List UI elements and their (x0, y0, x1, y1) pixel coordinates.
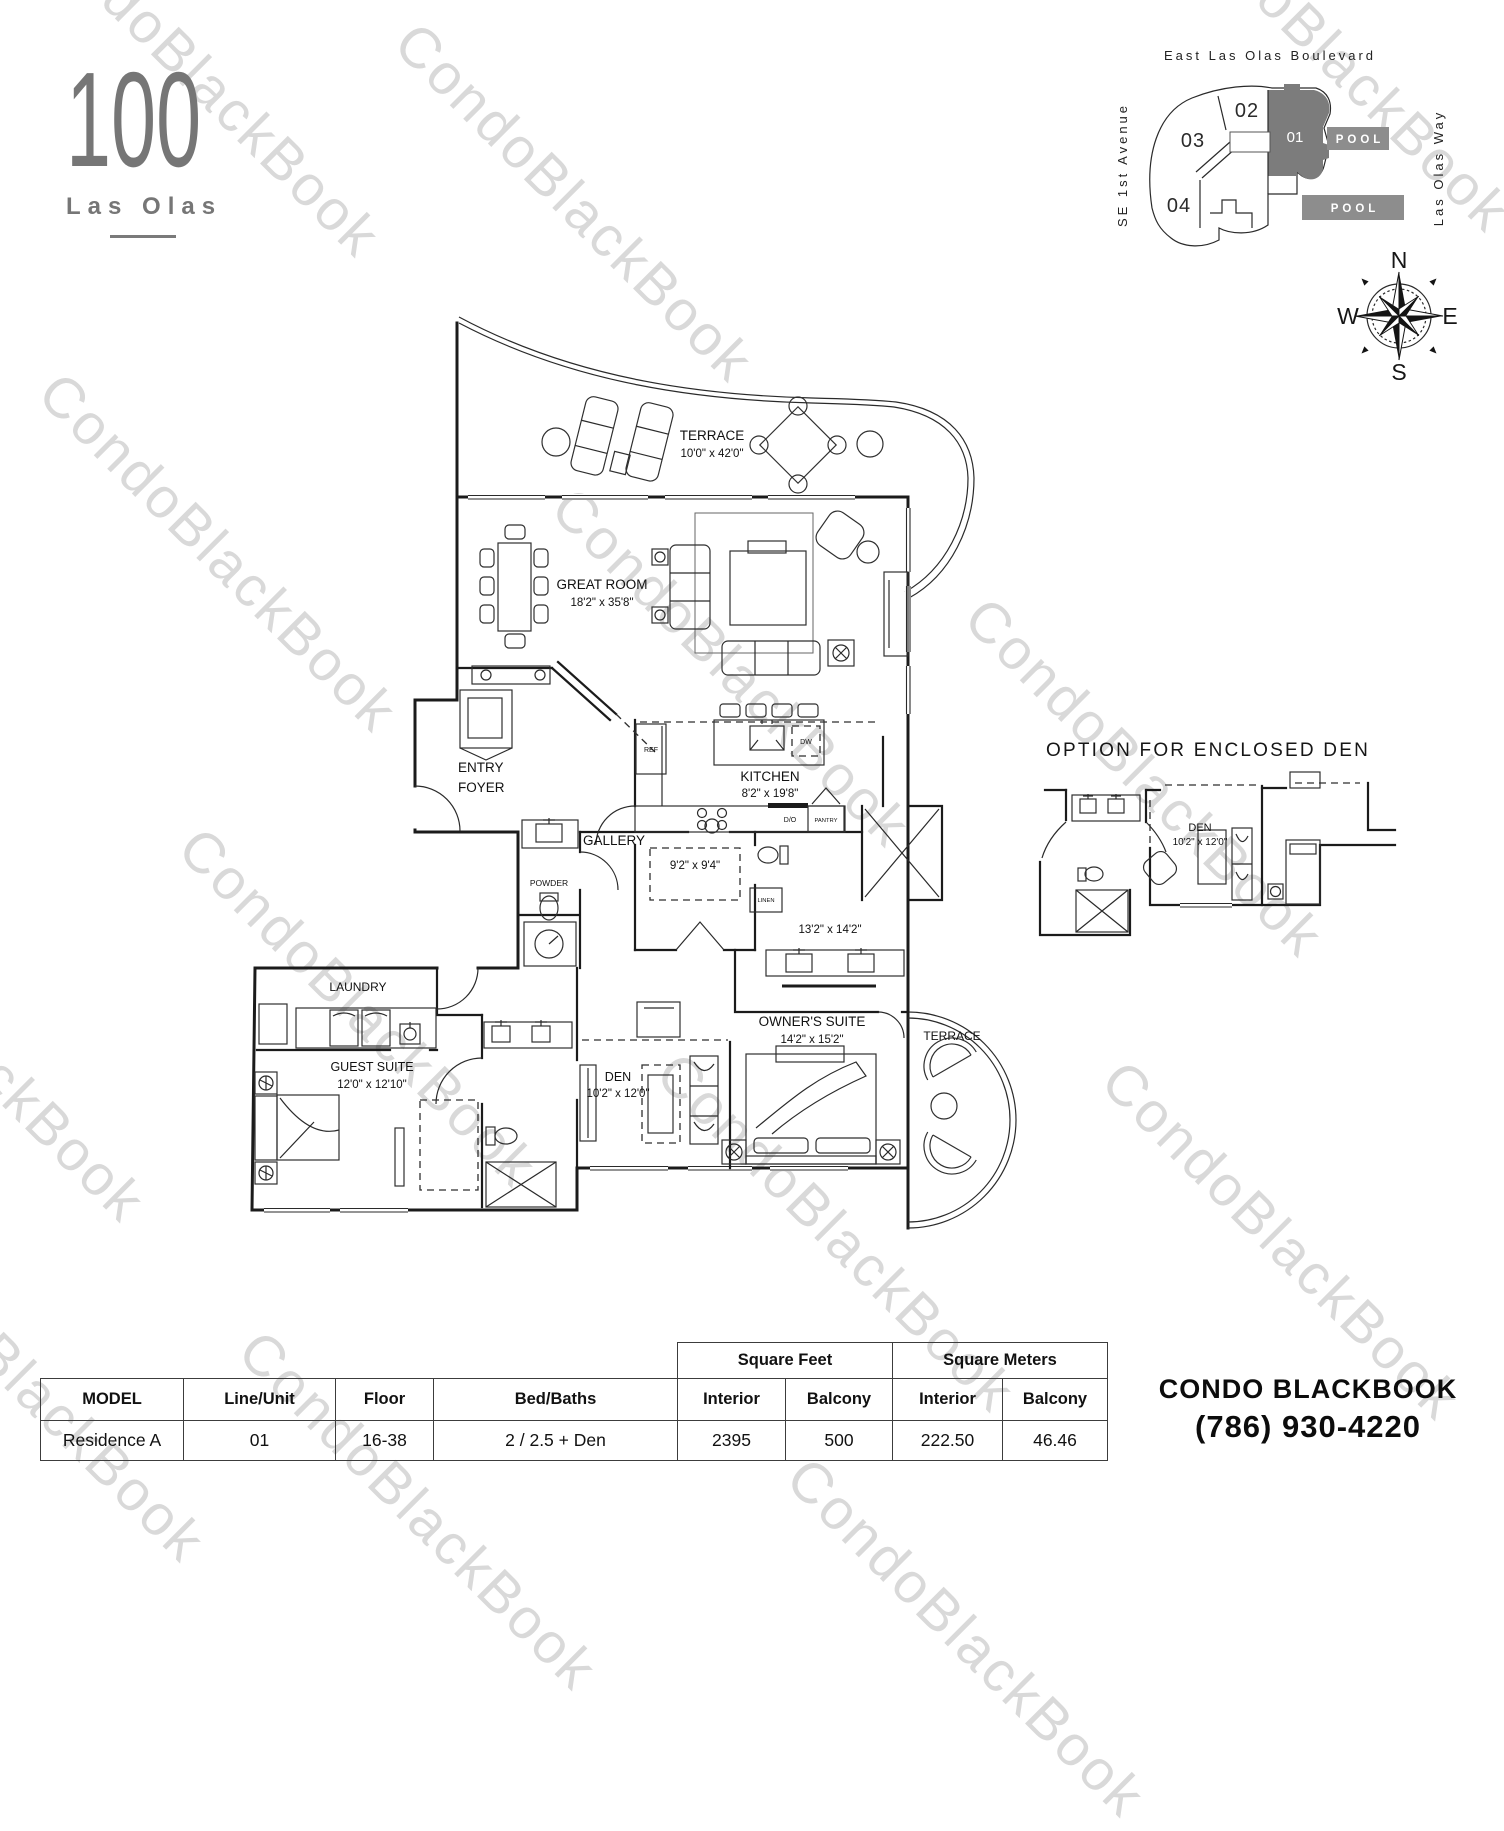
cell-line-unit: 01 (184, 1421, 336, 1461)
group-header-square-meters: Square Meters (893, 1343, 1108, 1379)
option-mini-plan: DEN 10'2" x 12'0" (1040, 772, 1395, 935)
powder-label: POWDER (530, 878, 568, 888)
street-label-top: East Las Olas Boulevard (1164, 48, 1376, 63)
col-header-bed-baths: Bed/Baths (434, 1379, 678, 1421)
owner-terrace-furniture (914, 1028, 976, 1184)
guest-suite-dims: 12'0" x 12'10" (337, 1079, 406, 1091)
cell-sqm-balcony: 46.46 (1003, 1421, 1108, 1461)
logo-number: 100 (66, 52, 201, 187)
pantry-label: PANTRY (815, 818, 838, 824)
terrace-label: TERRACE (680, 428, 745, 443)
owner-bath-fixtures (766, 948, 904, 986)
street-label-right: Las Olas Way (1431, 110, 1446, 226)
compass-star (1355, 272, 1443, 360)
logo-name: Las Olas (66, 193, 291, 221)
entry-foyer-label: FOYER (458, 780, 505, 795)
table-row: Residence A 01 16-38 2 / 2.5 + Den 2395 … (41, 1421, 1108, 1461)
terrace-furniture (542, 395, 883, 493)
dishwasher-label: DW (800, 739, 812, 746)
cell-floor: 16-38 (336, 1421, 434, 1461)
nook-dims: 9'2" x 9'4" (670, 860, 720, 872)
kitchen-label: KITCHEN (740, 769, 799, 784)
gallery-label: GALLERY (583, 833, 645, 848)
owner-suite-dims: 14'2" x 15'2" (780, 1034, 843, 1046)
great-room-label: GREAT ROOM (556, 577, 647, 592)
option-plan-title: OPTION FOR ENCLOSED DEN (1046, 740, 1370, 762)
cell-bed-baths: 2 / 2.5 + Den (434, 1421, 678, 1461)
floorplan-sheet: { "watermark": {"text": "CondoBlackBook"… (0, 0, 1504, 1503)
option-den-label: DEN (1188, 822, 1211, 834)
cell-sqft-interior: 2395 (678, 1421, 786, 1461)
owner-terrace-label: TERRACE (923, 1029, 980, 1043)
door-arcs (415, 786, 904, 1104)
powder-room-fixtures (522, 818, 578, 966)
building-core (1230, 132, 1270, 152)
den-furniture (580, 1002, 718, 1144)
cell-sqft-balcony: 500 (786, 1421, 893, 1461)
unit-label-02: 02 (1235, 100, 1259, 122)
option-furniture (1140, 828, 1320, 904)
table-spacer (41, 1343, 678, 1379)
refrigerator-label: REF (644, 747, 658, 754)
unit-label-03: 03 (1181, 130, 1205, 152)
street-label-left: SE 1st Avenue (1115, 103, 1130, 227)
compass-s: S (1391, 359, 1406, 385)
compass-w: W (1337, 303, 1359, 329)
cell-model: Residence A (41, 1421, 184, 1461)
laundry-fixtures (259, 1004, 436, 1048)
main-floor-plan: DW REF D/O PANTRY (252, 317, 1016, 1228)
owner-terrace-railing (908, 1012, 1016, 1228)
spec-table: Square Feet Square Meters MODEL Line/Uni… (40, 1342, 1108, 1461)
kitchen-dims: 8'2" x 19'8" (742, 788, 799, 800)
contact-block: CONDO BLACKBOOK (786) 930-4220 (1118, 1374, 1498, 1445)
col-header-sqft-balcony: Balcony (786, 1379, 893, 1421)
great-room-furniture (460, 507, 908, 760)
col-header-sqft-interior: Interior (678, 1379, 786, 1421)
pool-label: POOL (1331, 203, 1380, 215)
cell-sqm-interior: 222.50 (893, 1421, 1003, 1461)
owner-suite-furniture (722, 1046, 900, 1164)
site-map: East Las Olas Boulevard SE 1st Avenue La… (1115, 48, 1446, 246)
oven-label: D/O (784, 817, 797, 824)
guest-suite-label: GUEST SUITE (330, 1060, 413, 1074)
col-header-sqm-interior: Interior (893, 1379, 1003, 1421)
col-header-model: MODEL (41, 1379, 184, 1421)
col-header-sqm-balcony: Balcony (1003, 1379, 1108, 1421)
linen-label: LINEN (757, 898, 774, 904)
owner-bath-dims: 13'2" x 14'2" (798, 924, 861, 936)
guest-bath-fixtures (484, 1020, 572, 1207)
option-walls (1040, 772, 1395, 935)
laundry-label: LAUNDRY (329, 980, 386, 994)
logo-underline (110, 235, 176, 238)
group-header-square-feet: Square Feet (678, 1343, 893, 1379)
col-header-floor: Floor (336, 1379, 434, 1421)
entry-foyer-label: ENTRY (458, 760, 504, 775)
unit-label-04: 04 (1167, 195, 1191, 217)
contact-phone: (786) 930-4220 (1118, 1409, 1498, 1445)
unit-label-01: 01 (1287, 129, 1304, 146)
col-header-line-unit: Line/Unit (184, 1379, 336, 1421)
great-room-dims: 18'2" x 35'8" (570, 597, 633, 609)
compass-e: E (1442, 303, 1457, 329)
contact-name: CONDO BLACKBOOK (1118, 1374, 1498, 1405)
option-den-dims: 10'2" x 12'0" (1173, 837, 1228, 848)
compass-rose: N S W E (1337, 247, 1458, 385)
den-label: DEN (605, 1070, 631, 1084)
den-dims: 10'2" x 12'0" (586, 1088, 649, 1100)
owner-suite-label: OWNER'S SUITE (759, 1014, 866, 1029)
brand-logo: 100 Las Olas (66, 52, 291, 238)
terrace-dims: 10'0" x 42'0" (680, 448, 743, 460)
pool-label: POOL (1336, 134, 1385, 146)
compass-n: N (1391, 247, 1408, 273)
